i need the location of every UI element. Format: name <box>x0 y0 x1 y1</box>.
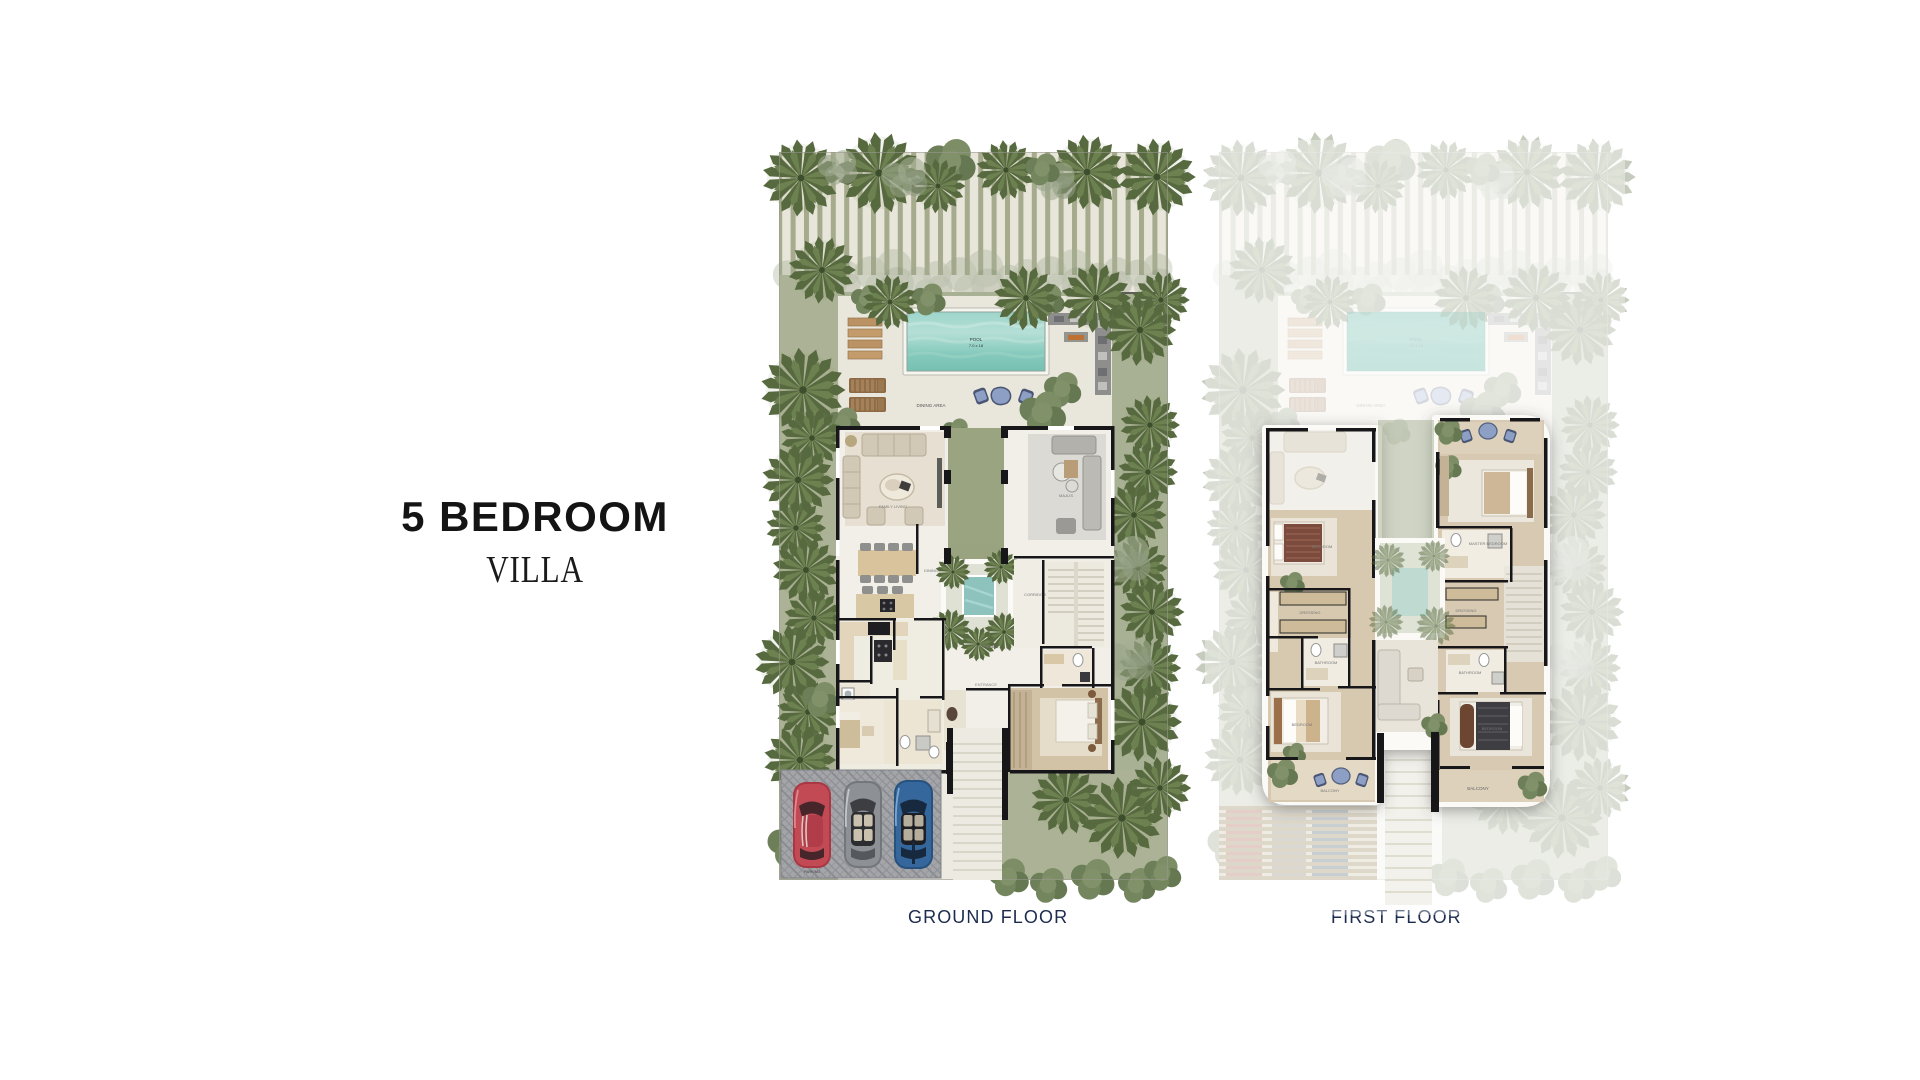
svg-text:BATHROOM: BATHROOM <box>1459 670 1482 675</box>
svg-text:DRESSING: DRESSING <box>1300 610 1321 615</box>
svg-text:BALCONY: BALCONY <box>1467 786 1489 791</box>
svg-text:MAJLIS: MAJLIS <box>1059 493 1073 498</box>
svg-text:BEDROOM: BEDROOM <box>1312 544 1333 549</box>
svg-text:BATHROOM: BATHROOM <box>1315 660 1338 665</box>
svg-text:BEDROOM: BEDROOM <box>1292 722 1313 727</box>
svg-text:FAMILY LIVING: FAMILY LIVING <box>879 504 907 509</box>
svg-text:DINING: DINING <box>924 568 938 573</box>
svg-text:MASTER BEDROOM: MASTER BEDROOM <box>1469 541 1507 546</box>
svg-text:BEDROOM: BEDROOM <box>1482 726 1503 731</box>
svg-text:BALCONY: BALCONY <box>1320 788 1339 793</box>
svg-text:FOYER: FOYER <box>982 644 998 649</box>
svg-text:DRESSING: DRESSING <box>1456 608 1477 613</box>
svg-text:ENTRANCE: ENTRANCE <box>975 682 997 687</box>
svg-text:PARKING: PARKING <box>804 870 821 874</box>
